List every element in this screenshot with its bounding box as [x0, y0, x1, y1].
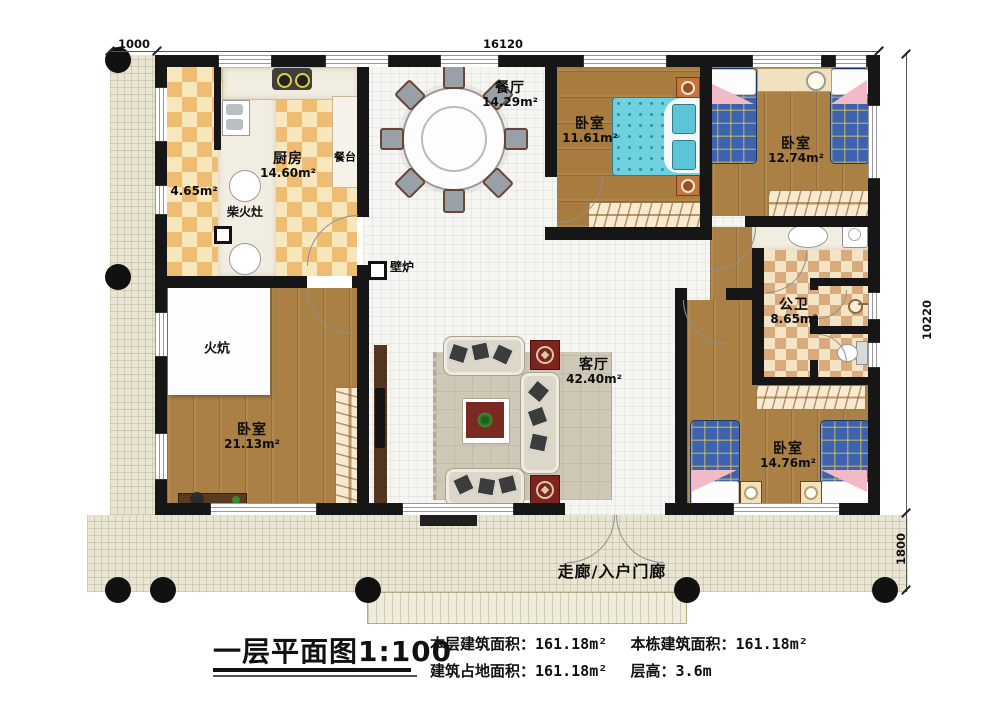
- porch-bottom-strip: [87, 515, 908, 592]
- living-label: 客厅 42.40m²: [566, 357, 622, 387]
- window: [155, 185, 167, 215]
- window: [402, 503, 514, 515]
- window: [868, 292, 880, 320]
- window: [155, 312, 167, 357]
- nightstand: [676, 77, 700, 98]
- flue-icon: [214, 226, 232, 244]
- side-table: [530, 475, 560, 505]
- wall: [726, 288, 764, 300]
- window: [752, 55, 822, 67]
- window: [835, 55, 867, 67]
- fireplace-icon: [368, 261, 387, 280]
- wall: [752, 248, 764, 385]
- wall: [357, 265, 369, 515]
- title-underline-thin: [213, 675, 417, 677]
- stat-label: 本层建筑面积：: [430, 635, 535, 653]
- bed-pillow: [672, 140, 696, 170]
- bed-pillow: [672, 104, 696, 134]
- bedroom-left-label: 卧室 21.13m²: [224, 422, 280, 452]
- stove-burner-icon: [295, 73, 310, 88]
- wall: [810, 278, 818, 290]
- stat-value: 161.18m²: [535, 635, 607, 653]
- wall: [167, 276, 307, 288]
- dimension-line: [110, 51, 880, 52]
- plan-title: 一层平面图1:100: [213, 630, 452, 670]
- kitchen-label: 厨房 14.60m²: [260, 151, 316, 181]
- wood-stove-pot-icon: [229, 170, 261, 202]
- title-underline-thick: [213, 668, 411, 672]
- dresser-mirror-icon: [806, 71, 826, 91]
- entrance-steps: [367, 592, 687, 624]
- wall: [357, 67, 369, 217]
- kang-label: 火炕: [204, 343, 230, 358]
- bathroom-sink-icon: [788, 224, 828, 248]
- dining-chair: [443, 65, 465, 89]
- porch-label: 走廊/入户门廊: [558, 563, 667, 581]
- dim-total-width: 16120: [483, 37, 523, 51]
- wall: [545, 227, 712, 240]
- bathroom-label: 公卫 8.65m²: [770, 297, 817, 327]
- stat-value: 161.18m²: [535, 662, 607, 680]
- wall: [352, 276, 369, 288]
- window: [325, 55, 389, 67]
- column: [105, 264, 131, 290]
- window: [733, 503, 840, 515]
- wall: [745, 216, 880, 227]
- wall: [752, 377, 868, 385]
- dining-chair: [380, 128, 404, 150]
- sofa-cushion: [528, 432, 548, 452]
- shower-arm-icon: [858, 303, 868, 305]
- wardrobe: [756, 385, 866, 410]
- wardrobe: [588, 202, 705, 228]
- stat-label: 层高：: [631, 662, 676, 680]
- floor-plan: 1000 16120 10220 1800 厨房 14.60m² 餐台 4.65…: [0, 0, 1000, 706]
- shower-head-icon: [848, 299, 863, 314]
- porch-left-strip: [110, 55, 155, 592]
- wardrobe: [768, 190, 870, 217]
- wall: [545, 67, 557, 177]
- bedroom-top-right-label: 卧室 12.74m²: [768, 136, 824, 166]
- wall: [818, 278, 868, 286]
- dim-porch-width: 1000: [118, 37, 150, 51]
- window: [868, 105, 880, 179]
- stat-value: 161.18m²: [736, 635, 808, 653]
- side-table: [530, 340, 560, 370]
- dining-chair: [443, 189, 465, 213]
- column: [872, 577, 898, 603]
- wall: [810, 360, 818, 377]
- stat-label: 本栋建筑面积：: [631, 635, 736, 653]
- wall: [675, 288, 687, 515]
- column: [674, 577, 700, 603]
- stove-burner-icon: [277, 73, 292, 88]
- stove-room-area-label: 4.65m²: [170, 185, 217, 199]
- serving-counter: [332, 96, 359, 188]
- wall: [818, 326, 868, 334]
- sofa-cushion: [477, 477, 497, 497]
- kitchen-sink-basin-icon: [226, 104, 243, 115]
- wood-stove-pot-icon: [229, 243, 261, 275]
- stats-row-2: 建筑占地面积：161.18m² 层高：3.6m: [430, 660, 712, 681]
- column: [355, 577, 381, 603]
- window: [218, 55, 272, 67]
- window: [440, 55, 499, 67]
- nightstand: [740, 481, 762, 505]
- nightstand: [676, 175, 700, 196]
- plan-title-text: 一层平面图: [213, 635, 358, 668]
- window: [583, 55, 667, 67]
- wall: [700, 67, 712, 227]
- dim-porch-depth: 1800: [894, 533, 908, 565]
- wood-stove-label: 柴火灶: [227, 206, 263, 220]
- window: [155, 87, 167, 142]
- stats-row-1: 本层建筑面积：161.18m² 本栋建筑面积：161.18m²: [430, 633, 808, 654]
- window: [155, 433, 167, 480]
- stat-label: 建筑占地面积：: [430, 662, 535, 680]
- dining-table-ring: [421, 106, 487, 172]
- sofa-cushion: [470, 341, 490, 361]
- kitchen-sink-basin-icon: [226, 119, 243, 130]
- wall: [214, 67, 221, 150]
- stat-value: 3.6m: [676, 662, 712, 680]
- dining-chair: [504, 128, 528, 150]
- fireplace-label: 壁炉: [390, 261, 414, 275]
- column: [150, 577, 176, 603]
- plant-icon: [477, 412, 493, 428]
- dim-total-depth: 10220: [920, 300, 934, 340]
- window: [868, 342, 880, 368]
- washing-machine-door-icon: [848, 228, 861, 241]
- bedroom-top-mid-label: 卧室 11.61m²: [562, 116, 618, 146]
- serving-counter-label: 餐台: [334, 152, 356, 165]
- column: [105, 577, 131, 603]
- nightstand: [800, 481, 822, 505]
- dining-label: 餐厅 14.29m²: [482, 80, 538, 110]
- bedroom-bottom-right-label: 卧室 14.76m²: [760, 441, 816, 471]
- tv-icon: [375, 388, 385, 448]
- kang-bed: [168, 282, 270, 395]
- window: [210, 503, 317, 515]
